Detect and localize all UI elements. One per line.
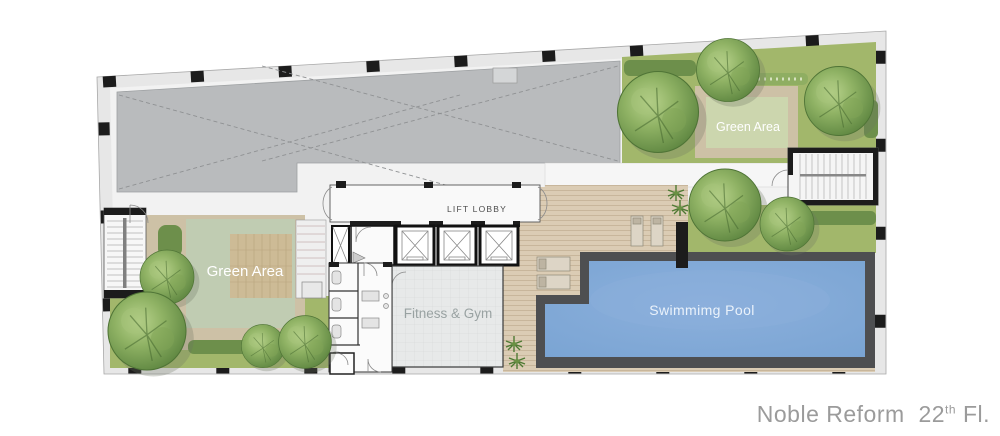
green-area-right-label: Green Area	[716, 120, 780, 134]
floor-ordinal: th	[945, 402, 956, 416]
floor-word: Fl.	[963, 401, 990, 427]
column	[676, 222, 688, 268]
green-area-left-label: Green Area	[207, 263, 284, 280]
floor-plan-drawing: Green Area Green Area	[0, 0, 1000, 436]
lift-lobby-label: LIFT LOBBY	[447, 204, 507, 214]
floor-plan-page: Green Area Green Area	[0, 0, 1000, 436]
elevator	[438, 226, 476, 265]
stairs-right	[772, 148, 878, 205]
toilet	[332, 298, 341, 311]
fitness-gym: Fitness & Gym	[392, 266, 503, 367]
toilet	[332, 271, 341, 284]
floor-number: 22	[918, 401, 945, 427]
pool-label: Swimmimg Pool	[649, 302, 755, 318]
roof-hatch	[493, 68, 517, 83]
sink	[362, 291, 379, 301]
fitness-gym-label: Fitness & Gym	[404, 306, 493, 321]
elevator-bank	[332, 221, 520, 265]
project-name: Noble Reform	[757, 401, 905, 427]
drawing-title: Noble Reform 22th Fl.	[757, 401, 990, 428]
lift-lobby: LIFT LOBBY	[323, 181, 547, 222]
planter-steps	[296, 220, 326, 298]
elevator	[396, 226, 434, 265]
elevator	[480, 226, 518, 265]
sink	[362, 318, 379, 328]
